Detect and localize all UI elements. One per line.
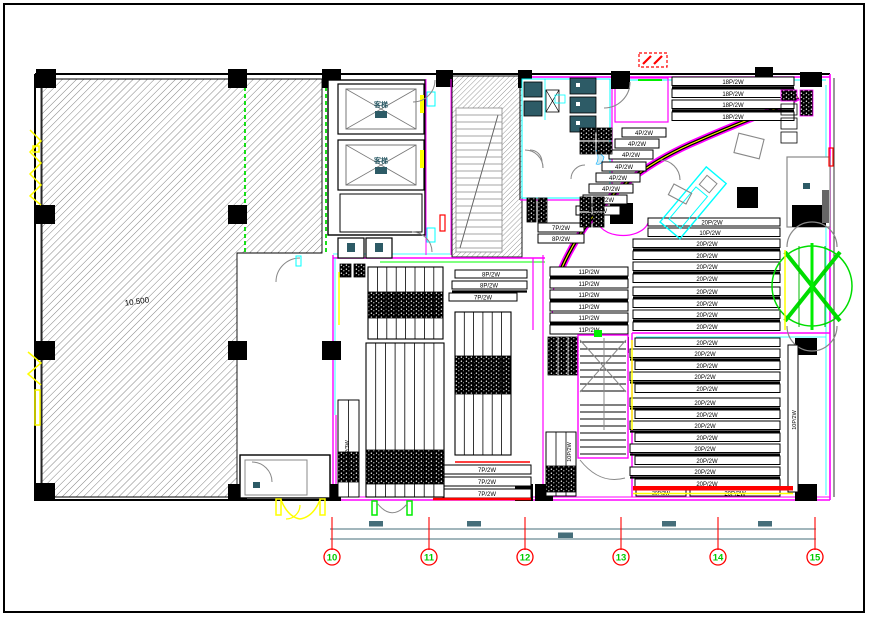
table-label: 4P/2W bbox=[622, 153, 640, 159]
table-label: 20P/2W bbox=[724, 492, 746, 498]
table-label: 7P/2W bbox=[478, 480, 496, 486]
table-label: 18P/2W bbox=[722, 80, 744, 86]
table-label: 7P/2W bbox=[478, 492, 496, 498]
table-label: 11P/2W bbox=[579, 282, 600, 288]
table-label: 18P/2W bbox=[722, 115, 744, 121]
table-label: 11P/2W bbox=[579, 293, 600, 299]
grid-bubble-label: 10 bbox=[327, 553, 338, 564]
table-label: 7P/2W bbox=[478, 468, 496, 474]
table-label: 20P/2W bbox=[694, 352, 716, 358]
table-label: 20P/2W bbox=[696, 387, 718, 393]
elevator-2-number-blob bbox=[375, 167, 387, 174]
stack-cluster-b bbox=[366, 343, 444, 497]
stair-lower bbox=[578, 330, 632, 480]
grid-bubble-label: 15 bbox=[810, 553, 821, 564]
table-label: 4P/2W bbox=[628, 142, 646, 148]
table-label: 20P/2W bbox=[694, 375, 716, 381]
reading-tables-right-upper: 10P/2W 20P/2W 20P/2W 20P/2W 20P/2W 20P/2… bbox=[633, 218, 780, 331]
table-label: 20P/2W bbox=[696, 413, 718, 419]
elevator-shaft-1: 客梯 bbox=[338, 84, 424, 134]
vertical-table-label: 10P/2W bbox=[792, 409, 798, 429]
table-label: 20P/2W bbox=[694, 401, 716, 407]
table-label: 20P/2W bbox=[701, 221, 723, 227]
table-label: 11P/2W bbox=[579, 305, 600, 311]
stack-cluster-a bbox=[368, 267, 443, 339]
table-label: 20P/2W bbox=[696, 302, 718, 308]
table-label: 4P/2W bbox=[615, 165, 633, 171]
elevator-1-label: 客梯 bbox=[373, 100, 388, 109]
stack-cluster-c bbox=[455, 312, 511, 455]
stack-cluster-d bbox=[548, 337, 578, 375]
table-label: 4P/2W bbox=[602, 187, 620, 193]
table-label: 20P/2W bbox=[696, 341, 718, 347]
table-label: 18P/2W bbox=[722, 92, 744, 98]
grid-bubble-label: 11 bbox=[424, 553, 435, 564]
reading-tables-center: 11P/2W 11P/2W 11P/2W 11P/2W 11P/2W 11P/2… bbox=[550, 267, 628, 334]
table-label: 20P/2W bbox=[696, 265, 718, 271]
reading-tables-right-lower: 20P/2W 20P/2W 20P/2W 20P/2W 20P/2W 20P/2… bbox=[630, 338, 780, 498]
table-label: 4P/2W bbox=[635, 131, 653, 137]
table-label: 20P/2W bbox=[694, 424, 716, 430]
table-label: 20P/2W bbox=[696, 254, 718, 260]
table-label: 8P/2W bbox=[480, 284, 498, 290]
table-label: 10P/2W bbox=[699, 231, 721, 237]
grid-bubble-label: 12 bbox=[520, 553, 531, 564]
elevator-shaft-2: 客梯 bbox=[338, 140, 424, 190]
table-label: 20P/2W bbox=[696, 459, 718, 465]
table-label: 20P/2W bbox=[696, 325, 718, 331]
table-label: 11P/2W bbox=[579, 270, 600, 276]
table-label: 20P/2W bbox=[696, 313, 718, 319]
table-label: 20P/2W bbox=[696, 277, 718, 283]
reading-tables-center-small: 8P/2W 8P/2W 7P/2W bbox=[449, 270, 527, 302]
floor-plan-canvas: 客梯 客梯 bbox=[0, 0, 869, 617]
table-label: 8P/2W bbox=[552, 237, 570, 243]
grid-bubble-label: 13 bbox=[616, 553, 627, 564]
table-label: 20P/2W bbox=[696, 290, 718, 296]
table-label: 11P/2W bbox=[579, 316, 600, 322]
table-label: 20P/2W bbox=[696, 242, 718, 248]
elevator-2-label: 客梯 bbox=[373, 156, 388, 165]
elevator-1-number-blob bbox=[375, 111, 387, 118]
stack-cluster-e bbox=[546, 432, 576, 496]
table-label: 20P/2W bbox=[694, 447, 716, 453]
small-room-bottom-left bbox=[240, 455, 330, 498]
table-label: 18P/2W bbox=[722, 103, 744, 109]
floor-plan-page: 客梯 客梯 bbox=[0, 0, 869, 617]
table-label: 7P/2W bbox=[474, 296, 492, 302]
table-label: 20P/2W bbox=[696, 364, 718, 370]
stair-upper bbox=[456, 108, 502, 252]
table-label: 4P/2W bbox=[609, 176, 627, 182]
vertical-table-label: 18P/3W bbox=[345, 439, 351, 459]
table-label: 20P/2W bbox=[696, 436, 718, 442]
table-label: 20P/2W bbox=[694, 470, 716, 476]
table-label: 8P/2W bbox=[482, 273, 500, 279]
grid-bubble-label: 14 bbox=[713, 553, 724, 564]
vertical-table-label: 10P/2W bbox=[567, 441, 573, 461]
reading-tables-bottom-small: 7P/2W 7P/2W 7P/2W bbox=[433, 462, 531, 499]
table-label: 7P/2W bbox=[552, 226, 570, 232]
